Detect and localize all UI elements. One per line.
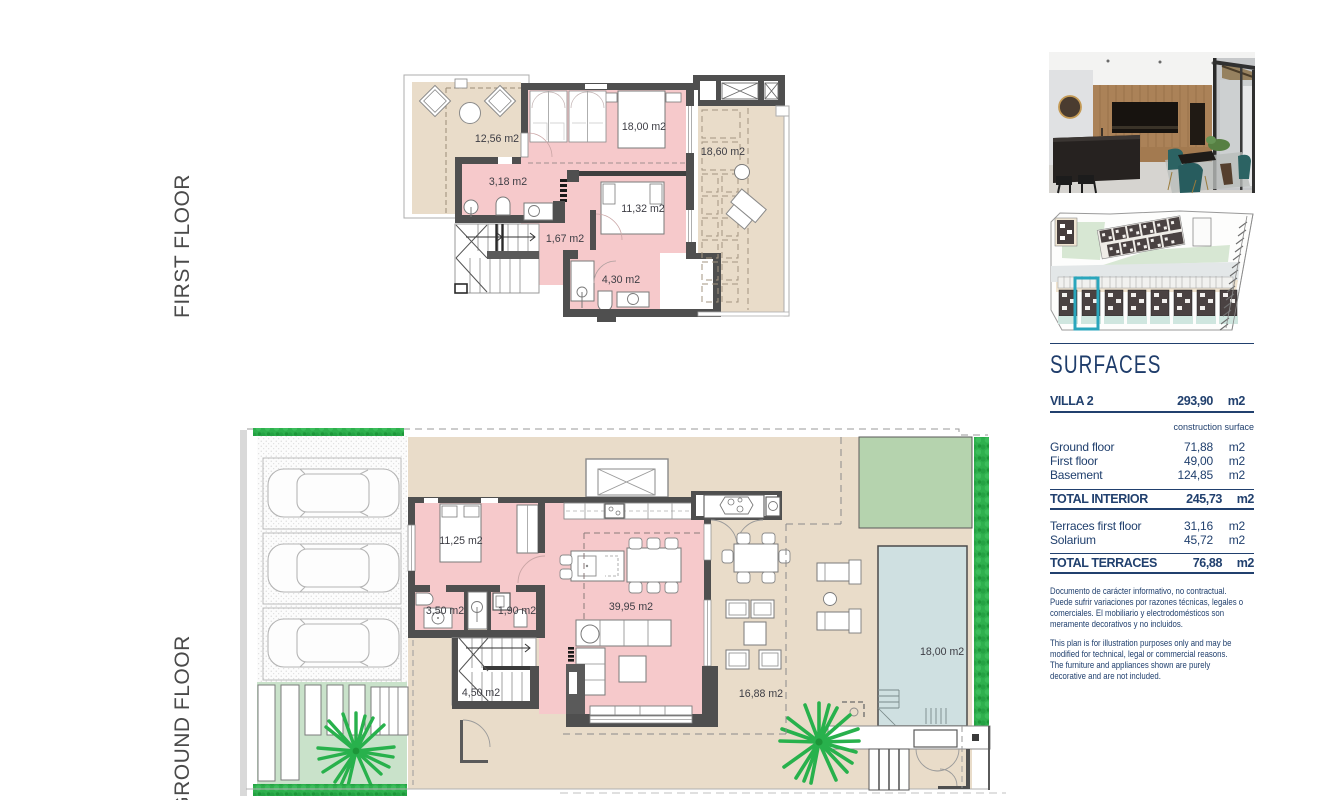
svg-text:18,60 m2: 18,60 m2 xyxy=(701,146,745,158)
svg-text:1,67 m2: 1,67 m2 xyxy=(546,233,584,245)
svg-text:18,00 m2: 18,00 m2 xyxy=(920,646,964,658)
svg-text:11,25 m2: 11,25 m2 xyxy=(439,535,482,547)
svg-text:1,90 m2: 1,90 m2 xyxy=(498,605,536,617)
svg-text:39,95 m2: 39,95 m2 xyxy=(609,601,653,613)
svg-text:4,30 m2: 4,30 m2 xyxy=(602,274,640,286)
svg-text:3,18 m2: 3,18 m2 xyxy=(489,176,527,188)
svg-text:18,00 m2: 18,00 m2 xyxy=(622,121,666,133)
svg-text:12,56 m2: 12,56 m2 xyxy=(475,133,519,145)
svg-text:FIRST FLOOR: FIRST FLOOR xyxy=(171,174,194,318)
svg-text:11,32 m2: 11,32 m2 xyxy=(621,203,664,215)
svg-text:3,50 m2: 3,50 m2 xyxy=(426,605,464,617)
svg-text:16,88 m2: 16,88 m2 xyxy=(739,688,783,700)
svg-text:4,50 m2: 4,50 m2 xyxy=(462,687,500,699)
svg-text:GROUND FLOOR: GROUND FLOOR xyxy=(171,635,194,800)
